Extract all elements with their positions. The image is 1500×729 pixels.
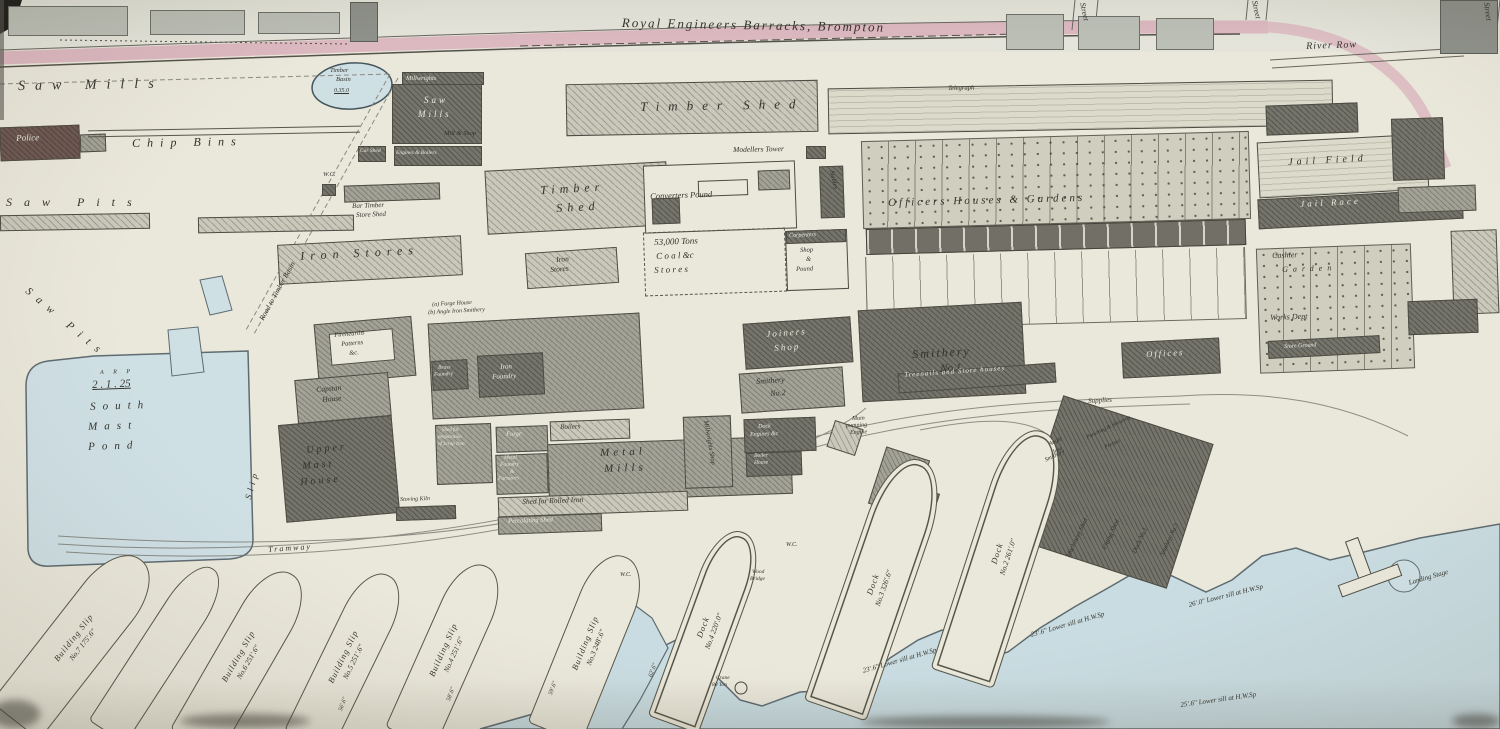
officers-gardens [861,131,1251,229]
photo-edge [0,0,4,120]
map-label: A R P [100,369,134,376]
police-station [0,125,81,162]
map-label: Capstan [316,384,342,394]
map-label: Stoving Kiln [400,496,430,503]
offices [1121,337,1221,378]
map-label: Shed [556,200,600,214]
map-label: Main [852,416,865,422]
map-label: Car Shed [360,149,381,155]
map-label: Carpenters [789,232,816,239]
map-label: Millwrights [406,76,436,83]
pound-block [652,198,681,225]
map-label: House [754,461,768,467]
map-label: Iron [556,255,569,263]
map-label: 0.35.0 [334,88,349,94]
barracks-block [150,10,245,35]
map-label: Bridge [750,577,765,583]
upper-mast-house [278,415,400,523]
smithery-no2 [739,366,846,413]
map-label: Mast [88,420,138,433]
photo-smudge [1452,714,1500,728]
map-label: Bar Timber [352,202,384,210]
map-label: Saw [424,96,448,105]
map-label: Shed for Rolled Iron [522,496,583,506]
map-label: Modellers Tower [733,145,784,153]
map-label: preparation [438,435,462,440]
map-label: Stores [550,265,569,274]
map-label: C o a l &c [656,251,694,261]
map-label: Dock [758,424,771,430]
map-label: &c. [349,350,359,357]
east-building [1407,299,1478,335]
map-label: Mills [604,463,647,475]
map-label: Chip Bins [132,135,243,149]
map-label: Store Shed [356,211,386,219]
saw-pits-row [198,215,354,234]
crane-circle [735,682,747,694]
map-label: Shop [774,342,801,353]
timber-shed-2 [484,161,669,234]
map-label: Converters Pound [650,190,712,201]
pond-channel [168,327,204,376]
map-label: Engines &c [750,431,778,438]
map-label: Iron [500,363,512,371]
barracks-block [8,6,128,36]
map-label: Timber [330,68,348,75]
map-label: W.C. [786,542,797,548]
map-label: pumping [846,422,867,429]
map-label: No.2 [770,389,786,398]
photo-smudge [860,716,1110,728]
map-label: 53,000 Tons [654,236,698,247]
map-label: Supplies [1088,397,1112,405]
map-label: Foundry [434,372,453,378]
map-label: Forge [506,431,522,438]
barracks-block [350,2,378,42]
map-label: House [322,394,342,403]
slip-label: Building SlipNo.5 251'.6" [326,628,370,689]
map-label: Crane [716,676,730,682]
stoving-kiln [396,505,456,521]
iron-stores-small [525,247,619,289]
map-label: Shed for [442,428,459,433]
slip-label: Building SlipNo.4 251'.6" [427,621,470,682]
map-label: South [90,400,150,413]
north-building [1266,102,1359,135]
barracks-block [258,12,340,34]
map-label: Mill & Shop [444,131,476,138]
map-label: Telegraph [948,86,974,93]
dockyard-map: Royal Engineers Barracks, Brompton River… [0,0,1500,729]
map-label: Saw Mills [18,77,164,94]
slip-label: Building SlipNo.3 248'.6" [569,614,610,675]
barracks-block [1006,14,1064,50]
south-mast-pond [26,351,253,566]
map-label: Metal [600,446,646,459]
map-label: Foundry [492,373,516,381]
barracks-block [1156,18,1214,50]
map-label: Pound [796,266,813,273]
map-label: Saw Pits [6,196,144,208]
map-label: Furnaces [498,476,519,482]
map-label: Engine [850,429,867,436]
map-label: Offices [1146,348,1184,358]
wc-hut [322,184,336,196]
slip-label: DockNo.3 326'.6" [862,564,894,607]
bar-timber-store-shed [344,182,441,202]
timber-basin [310,60,393,111]
slip-label: DockNo.2 261'.0" [986,534,1018,577]
slip-label: Building SlipNo.6 251'.6" [220,628,267,688]
map-label: Basin [336,77,351,84]
map-label: W.C. [620,572,631,578]
barracks-block [1078,16,1140,50]
map-label: Police [16,133,39,143]
map-label: W.C. [323,172,335,179]
map-label: Works Dept [1270,313,1308,322]
river-row-label: River Row [1306,40,1357,52]
saw-pits-row [0,213,150,232]
pound-block [758,169,791,190]
map-label: 2 . 1 . 25 [92,379,131,391]
slip-label: DockNo.4 220'.0" [692,607,725,650]
east-building [1391,117,1445,181]
map-label: Timber [540,181,605,196]
map-label: Timber Shed [640,97,805,113]
map-label: Cashier [1272,251,1298,260]
modellers-tower [806,146,826,159]
slip-label: Building SlipNo.7 175'.6" [52,611,104,669]
map-label: Smithery [912,345,971,360]
photo-smudge [180,714,310,728]
road-water-crossing [200,276,232,315]
map-label: S t o r e s [654,265,688,275]
map-label: Shop [800,248,813,255]
map-label: Wood [752,570,764,576]
map-label: & [806,257,811,264]
map-label: Engines & Boilers [396,151,437,157]
map-label: Boilers [560,423,580,431]
map-label: Pond [88,440,140,453]
map-label: Mills [418,110,452,119]
street-label: Street [1482,2,1492,21]
map-label: of Scrap Iron [438,442,464,447]
map-label: Foundry [500,462,519,468]
forge [496,425,549,453]
timber-ground [828,80,1334,135]
map-label: 80 Ton [712,683,727,689]
east-building [1398,185,1477,214]
